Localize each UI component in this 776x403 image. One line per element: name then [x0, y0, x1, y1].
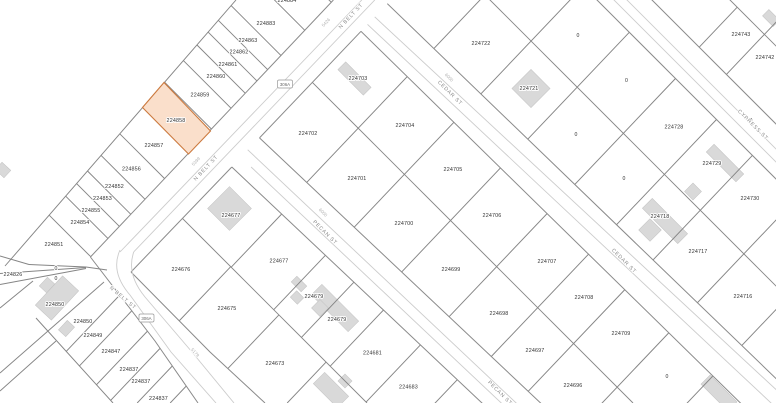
svg-text:224675: 224675	[218, 306, 237, 312]
svg-text:224857: 224857	[145, 143, 164, 149]
svg-text:224679: 224679	[305, 294, 324, 300]
svg-text:224847: 224847	[102, 349, 121, 355]
svg-text:0: 0	[55, 266, 58, 272]
svg-text:224707: 224707	[538, 259, 557, 265]
svg-text:224883: 224883	[257, 21, 276, 27]
svg-text:224859: 224859	[191, 93, 210, 99]
svg-text:224677: 224677	[270, 259, 289, 265]
svg-text:224677: 224677	[222, 213, 241, 219]
svg-text:224708: 224708	[575, 295, 594, 301]
svg-text:224697: 224697	[526, 348, 545, 354]
svg-text:224673: 224673	[266, 361, 285, 367]
svg-text:224702: 224702	[299, 131, 318, 137]
svg-text:0: 0	[577, 33, 580, 39]
svg-text:224850: 224850	[46, 302, 65, 308]
svg-text:224722: 224722	[472, 41, 491, 47]
svg-text:224884: 224884	[278, 0, 297, 4]
svg-text:224862: 224862	[230, 50, 249, 56]
svg-text:224826: 224826	[4, 272, 23, 278]
svg-text:224696: 224696	[564, 383, 583, 389]
svg-text:224676: 224676	[172, 267, 191, 273]
svg-text:224853: 224853	[93, 196, 112, 202]
svg-text:224730: 224730	[741, 196, 760, 202]
svg-text:224854: 224854	[71, 220, 90, 226]
svg-text:224837: 224837	[120, 367, 139, 373]
svg-text:0: 0	[625, 78, 628, 84]
svg-text:224850: 224850	[74, 319, 93, 325]
svg-text:224863: 224863	[239, 38, 258, 44]
svg-text:224856: 224856	[122, 167, 141, 173]
svg-text:224742: 224742	[756, 55, 775, 61]
svg-text:224849: 224849	[84, 333, 103, 339]
svg-text:224701: 224701	[348, 176, 367, 182]
svg-text:224721: 224721	[520, 86, 539, 92]
svg-text:224706: 224706	[483, 213, 502, 219]
svg-text:224703: 224703	[349, 76, 368, 82]
svg-text:224855: 224855	[82, 208, 101, 214]
svg-text:224709: 224709	[612, 331, 631, 337]
svg-text:224728: 224728	[665, 125, 684, 131]
svg-text:0: 0	[623, 176, 626, 182]
svg-text:224683: 224683	[399, 385, 418, 391]
svg-text:224837: 224837	[149, 396, 168, 402]
svg-text:224699: 224699	[442, 267, 461, 273]
svg-text:0: 0	[666, 374, 669, 380]
svg-text:224851: 224851	[45, 242, 64, 248]
svg-text:306A: 306A	[280, 82, 290, 87]
svg-text:224679: 224679	[328, 317, 347, 323]
svg-text:224858: 224858	[167, 118, 186, 124]
svg-text:224704: 224704	[396, 123, 415, 129]
svg-text:224717: 224717	[689, 249, 708, 255]
svg-text:224852: 224852	[105, 184, 124, 190]
svg-text:306A: 306A	[141, 316, 151, 321]
svg-text:224700: 224700	[395, 221, 414, 227]
svg-text:0: 0	[575, 132, 578, 138]
svg-text:224743: 224743	[732, 32, 751, 38]
svg-text:224698: 224698	[490, 311, 509, 317]
svg-text:224837: 224837	[132, 379, 151, 385]
svg-text:224681: 224681	[363, 351, 382, 357]
svg-text:224729: 224729	[703, 161, 722, 167]
svg-text:224860: 224860	[207, 74, 226, 80]
svg-text:224705: 224705	[444, 167, 463, 173]
svg-text:224716: 224716	[734, 294, 753, 300]
svg-text:224718: 224718	[651, 214, 670, 220]
svg-text:0: 0	[55, 276, 58, 282]
svg-text:224861: 224861	[219, 62, 238, 68]
